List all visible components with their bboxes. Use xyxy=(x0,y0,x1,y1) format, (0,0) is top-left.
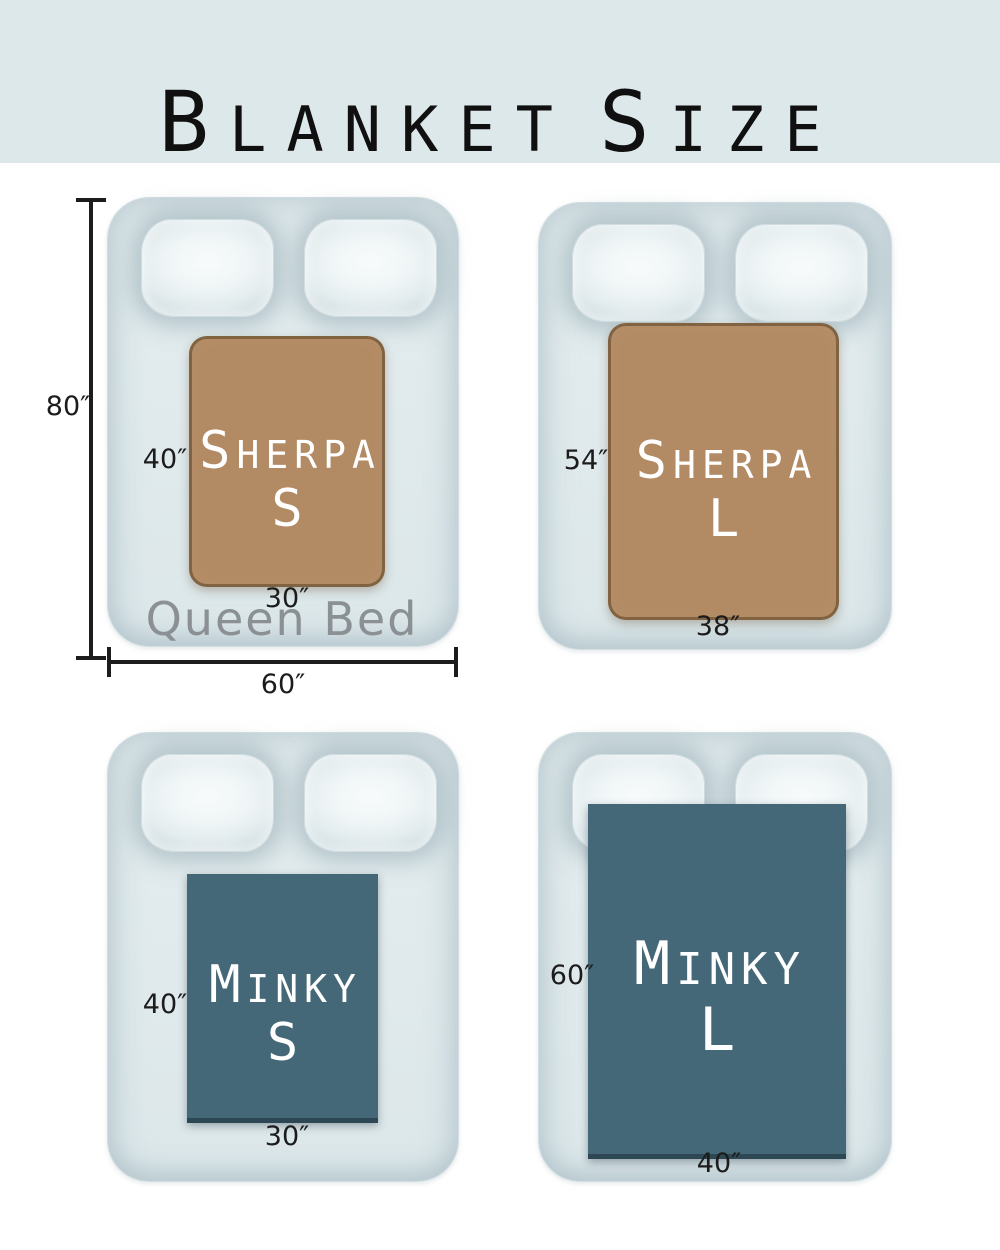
dimension-cap xyxy=(76,198,106,202)
queen-bed-minky-l: MINKY L xyxy=(538,732,892,1182)
blanket-name-rest: INKY xyxy=(246,967,362,1011)
queen-bed-minky-s: MINKY S xyxy=(107,732,459,1182)
blanket-size-letter: L xyxy=(630,493,818,545)
pillow-right xyxy=(304,219,437,317)
blanket-name-initial: M xyxy=(634,929,676,999)
minky-s-height-label: 40″ xyxy=(133,990,197,1020)
sherpa-l-height-label: 54″ xyxy=(554,446,618,476)
sherpa-s-blanket: SHERPA S xyxy=(189,336,385,587)
dimension-cap xyxy=(107,647,111,677)
bed-height-label: 80″ xyxy=(36,392,100,422)
pillow-right xyxy=(304,754,437,852)
sherpa-l-width-label: 38″ xyxy=(686,612,750,642)
minky-s-width-label: 30″ xyxy=(255,1122,319,1152)
blanket-name-initial: M xyxy=(209,955,246,1015)
bed-width-dimension-line xyxy=(107,660,458,664)
blanket-size-letter: L xyxy=(628,1000,806,1060)
queen-bed-sherpa-l: SHERPA L xyxy=(538,202,892,650)
pillow-left xyxy=(141,754,274,852)
pillow-right xyxy=(735,224,868,322)
minky-l-width-label: 40″ xyxy=(687,1149,751,1179)
blanket-name-rest: INKY xyxy=(676,944,806,995)
pillow-left xyxy=(572,224,705,322)
title-initial-1: B xyxy=(158,84,229,161)
minky-l-label: MINKY L xyxy=(628,934,806,1060)
dimension-cap xyxy=(454,647,458,677)
queen-bed-sherpa-s: SHERPA S xyxy=(107,197,459,647)
minky-l-height-label: 60″ xyxy=(540,961,604,991)
blanket-name-initial: S xyxy=(636,431,673,491)
title-rest-1: LANKET xyxy=(229,99,573,161)
blanket-name-rest: HERPA xyxy=(673,443,817,487)
blanket-size-infographic: BLANKETSIZE SHERPA S SHERPA L MINKY xyxy=(0,0,1000,1250)
sherpa-s-label: SHERPA S xyxy=(193,425,381,535)
blanket-size-letter: S xyxy=(193,483,381,535)
title-initial-2: S xyxy=(599,84,670,161)
minky-l-blanket: MINKY L xyxy=(588,804,846,1159)
sherpa-l-blanket: SHERPA L xyxy=(608,323,839,620)
blanket-name-rest: HERPA xyxy=(236,433,380,477)
sherpa-s-width-label: 30″ xyxy=(255,584,319,614)
pillow-left xyxy=(141,219,274,317)
minky-s-label: MINKY S xyxy=(203,959,362,1069)
dimension-cap xyxy=(76,656,106,660)
minky-s-blanket: MINKY S xyxy=(187,874,378,1123)
bed-width-label: 60″ xyxy=(223,670,343,700)
blanket-name-initial: S xyxy=(199,421,236,481)
bed-height-dimension-line xyxy=(89,198,93,660)
title-rest-2: IZE xyxy=(670,99,842,161)
blanket-size-letter: S xyxy=(203,1017,362,1069)
sherpa-s-height-label: 40″ xyxy=(133,445,197,475)
sherpa-l-label: SHERPA L xyxy=(630,435,818,545)
page-title: BLANKETSIZE xyxy=(0,0,1000,163)
